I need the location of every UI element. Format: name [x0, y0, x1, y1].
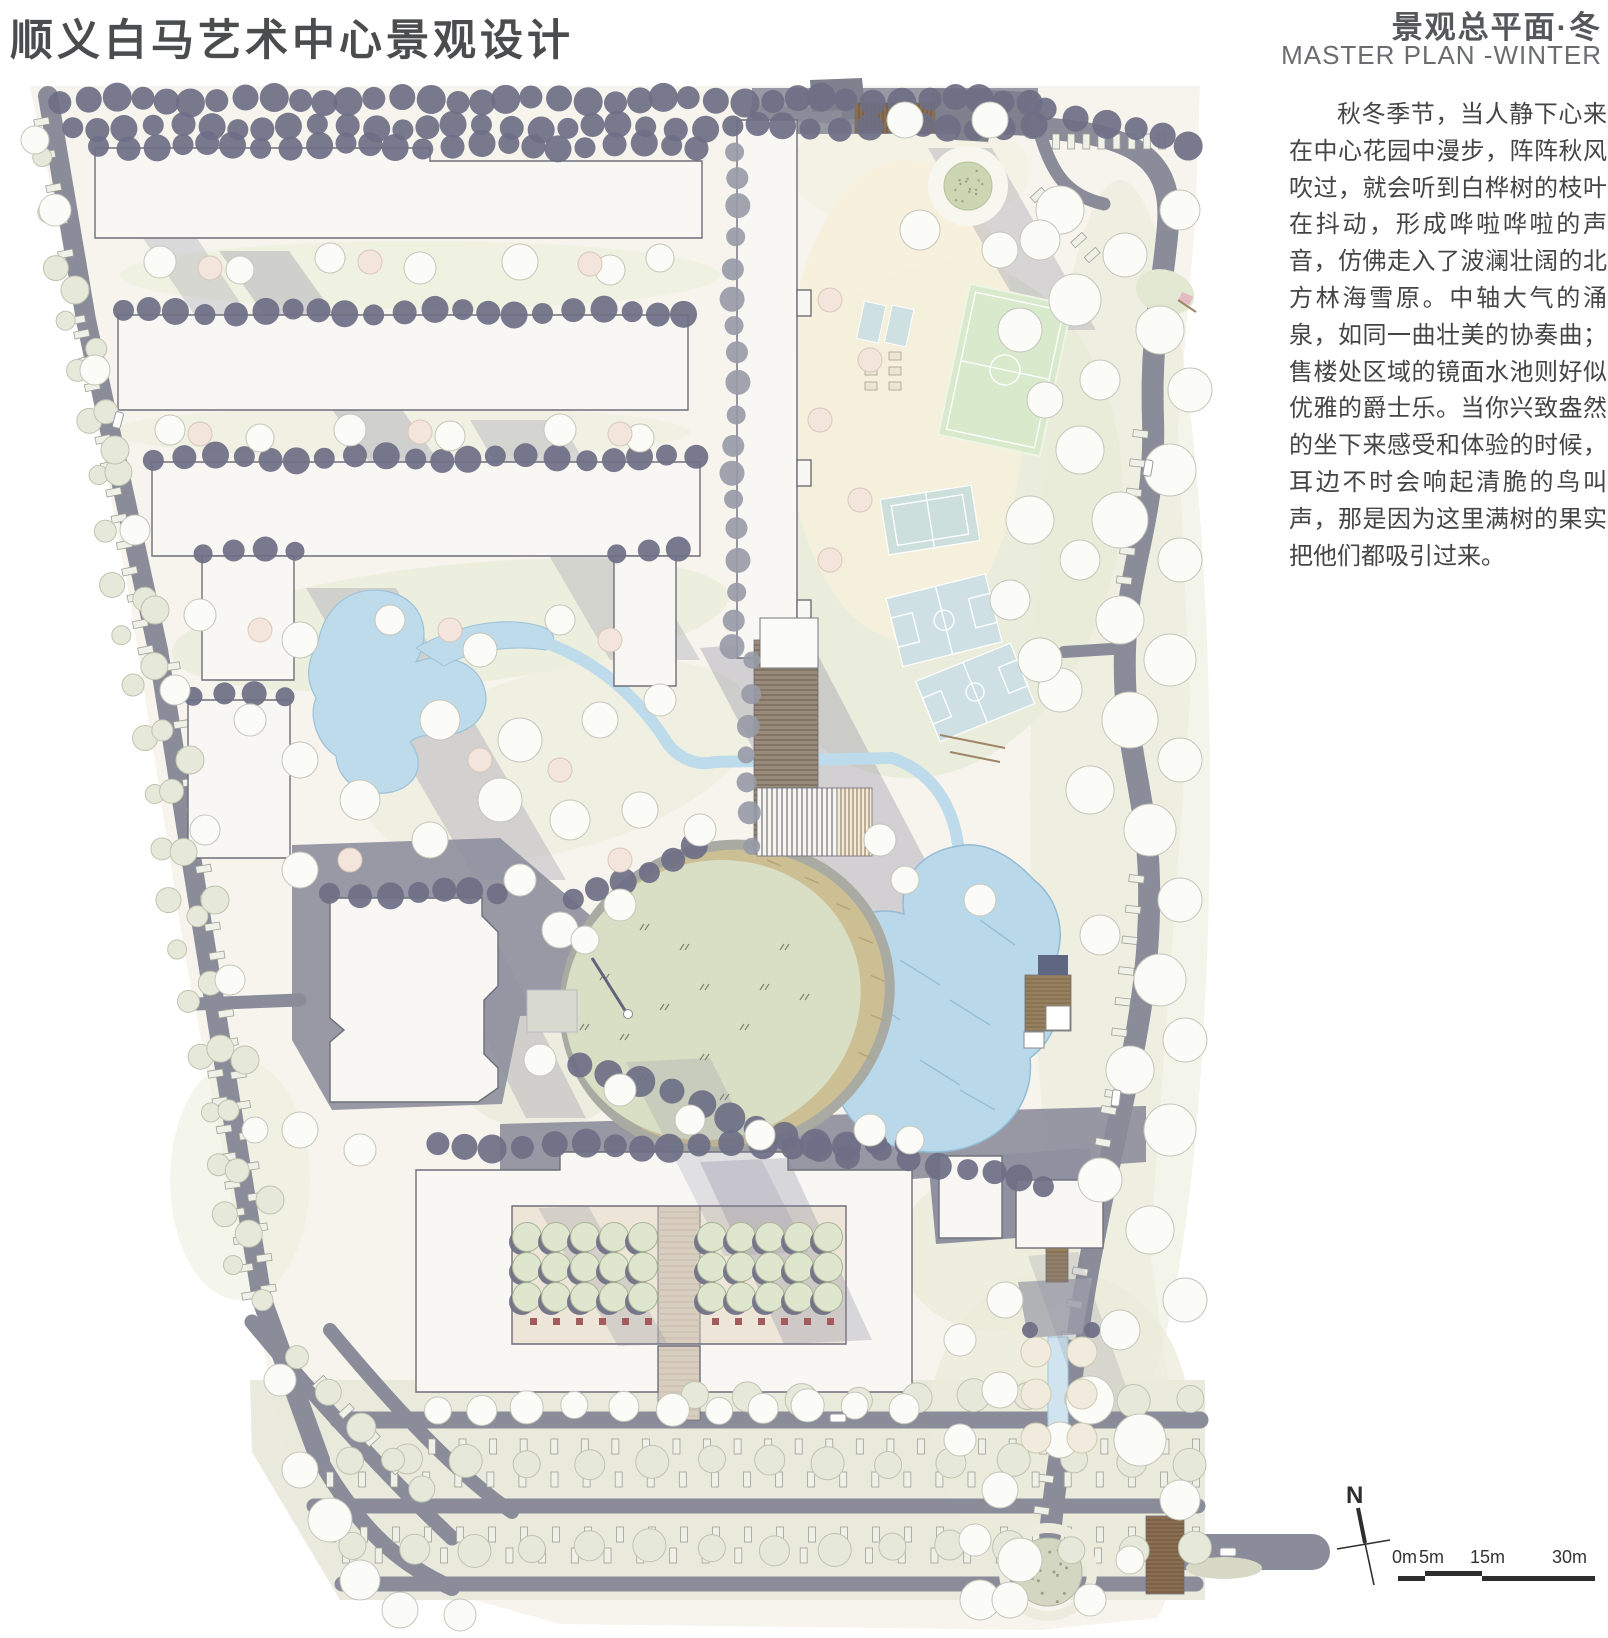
deck-canopy	[1046, 1006, 1070, 1030]
residential-slab-1	[95, 148, 702, 238]
slab-tab	[797, 460, 811, 486]
deck-roof	[1038, 955, 1068, 975]
deck-canopy-small	[1024, 1032, 1044, 1048]
scale-label-0: 0m	[1392, 1547, 1417, 1567]
scale-bar: 0m 5m 15m 30m	[1392, 1547, 1595, 1581]
mirror-pool	[527, 990, 577, 1032]
flagpole	[624, 1010, 633, 1019]
slab-tab	[797, 290, 811, 316]
art-center-building	[330, 898, 498, 1102]
scale-label-15: 15m	[1470, 1547, 1505, 1567]
entry-green-circle	[944, 162, 992, 210]
scale-label-30: 30m	[1552, 1547, 1587, 1567]
north-arrow-icon: N	[1337, 1482, 1390, 1585]
scale-label-5: 5m	[1419, 1547, 1444, 1567]
plan-title-en: MASTER PLAN -WINTER	[1281, 40, 1602, 71]
page-title: 顺义白马艺术中心景观设计	[10, 6, 574, 68]
north-label: N	[1346, 1482, 1363, 1509]
axis-canopy	[760, 618, 818, 668]
presentation-board: 顺义白马艺术中心景观设计 景观总平面·冬 MASTER PLAN -WINTER…	[0, 0, 1608, 1638]
description-paragraph: 秋冬季节，当人静下心来在中心花园中漫步，阵阵秋风吹过，就会听到白桦树的枝叶在抖动…	[1289, 97, 1607, 575]
residential-slab-2	[118, 315, 688, 410]
residential-block-4b	[614, 556, 676, 686]
